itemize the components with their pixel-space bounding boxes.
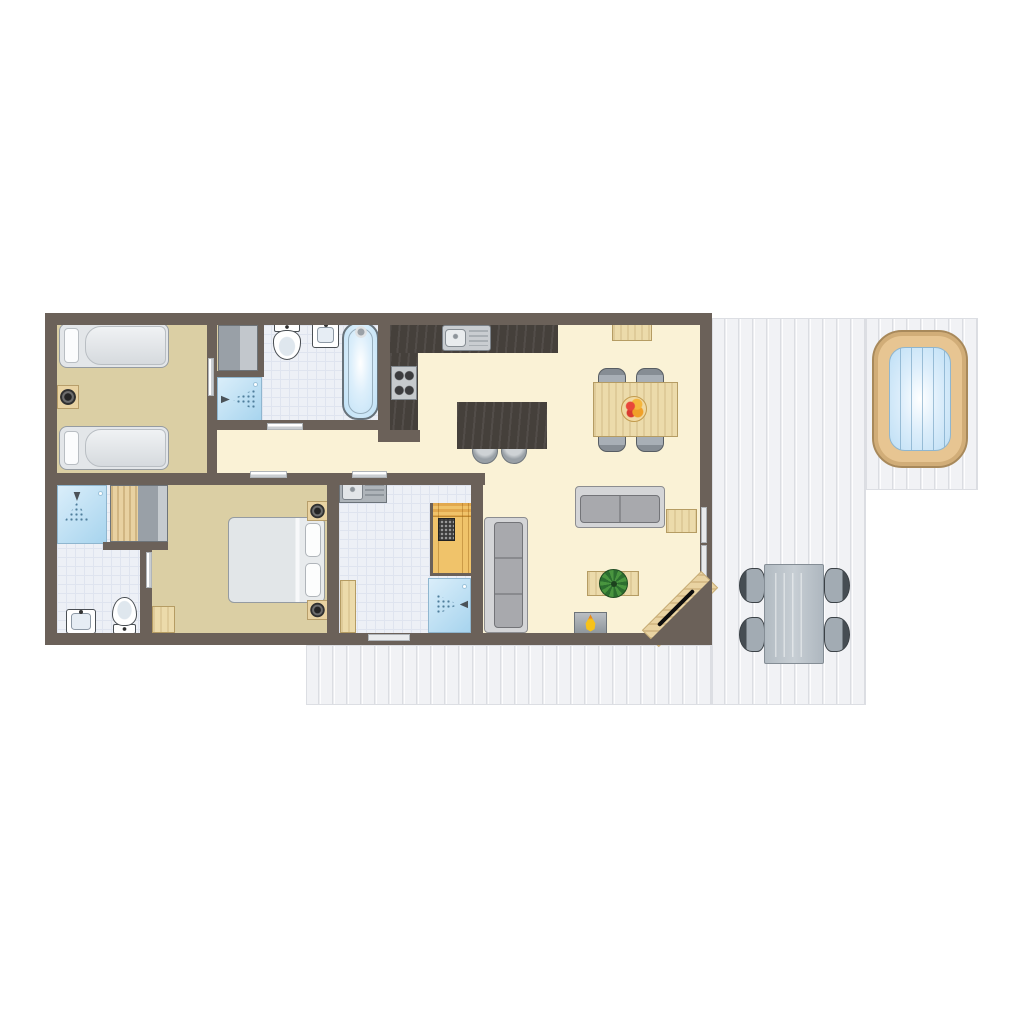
wall-bathroom1-kitchen [378, 313, 390, 430]
bathroom2-shower-spray-icon [64, 492, 90, 522]
window-right-upper [701, 507, 707, 543]
bathroom3-shower-spray-icon [436, 594, 468, 615]
door-bathroom2 [146, 552, 152, 588]
deck-bottom [306, 645, 712, 705]
wall-bathroom1-bottom [217, 420, 390, 430]
fireplace [574, 612, 607, 634]
bedroom2-nightstand-bottom [307, 600, 328, 620]
bedroom1-single-bed-top [59, 323, 169, 368]
bathroom1-toilet [271, 322, 303, 360]
outdoor-chair-top-right [824, 568, 850, 603]
bedroom2-dresser [152, 606, 175, 633]
door-bedroom2 [250, 471, 287, 478]
wall-bedroom1-right [207, 325, 217, 473]
bathroom2-toilet [111, 597, 138, 634]
bathroom1-bathtub [342, 322, 379, 420]
bedroom1-single-bed-bottom [59, 426, 169, 470]
plant [599, 569, 628, 598]
wall-closet-bottom [217, 371, 264, 377]
bedroom2-nightstand-top [307, 501, 328, 521]
kitchen-island [457, 402, 547, 449]
wall-under-wardrobe2 [103, 542, 168, 550]
floor-plan [0, 0, 1024, 1024]
outdoor-dining-table [764, 564, 824, 664]
door-bathroom3 [352, 471, 387, 478]
bedroom1-nightstand [57, 385, 79, 409]
wall-bathroom3-right [471, 485, 483, 633]
outdoor-chair-top-left [739, 568, 765, 603]
door-bedroom1 [208, 358, 214, 396]
bathroom3-cabinet [340, 580, 356, 633]
wall-bedroom2-right [327, 485, 339, 633]
closet-wardrobe [218, 325, 258, 371]
bathroom2-sink [66, 609, 96, 634]
sofa-three-seat [484, 517, 528, 633]
outdoor-chair-bottom-left [739, 617, 765, 652]
fruit-bowl [621, 396, 647, 422]
bedroom2-wardrobe [110, 485, 168, 542]
wall-closet-right [258, 325, 264, 375]
bathroom1-shower-spray-icon [221, 389, 255, 410]
window-bottom [368, 634, 410, 641]
wall-kitchen-stub [378, 430, 420, 442]
hot-tub [872, 330, 968, 468]
bathroom1-sink [312, 322, 339, 348]
kitchen-stove [391, 366, 417, 400]
kitchen-sink [442, 325, 491, 351]
outdoor-chair-bottom-right [824, 617, 850, 652]
door-bathroom1 [267, 423, 303, 430]
sauna-heater [438, 518, 455, 541]
sofa-two-seat [575, 486, 665, 528]
side-table [666, 509, 697, 533]
bedroom2-double-bed [228, 517, 325, 603]
